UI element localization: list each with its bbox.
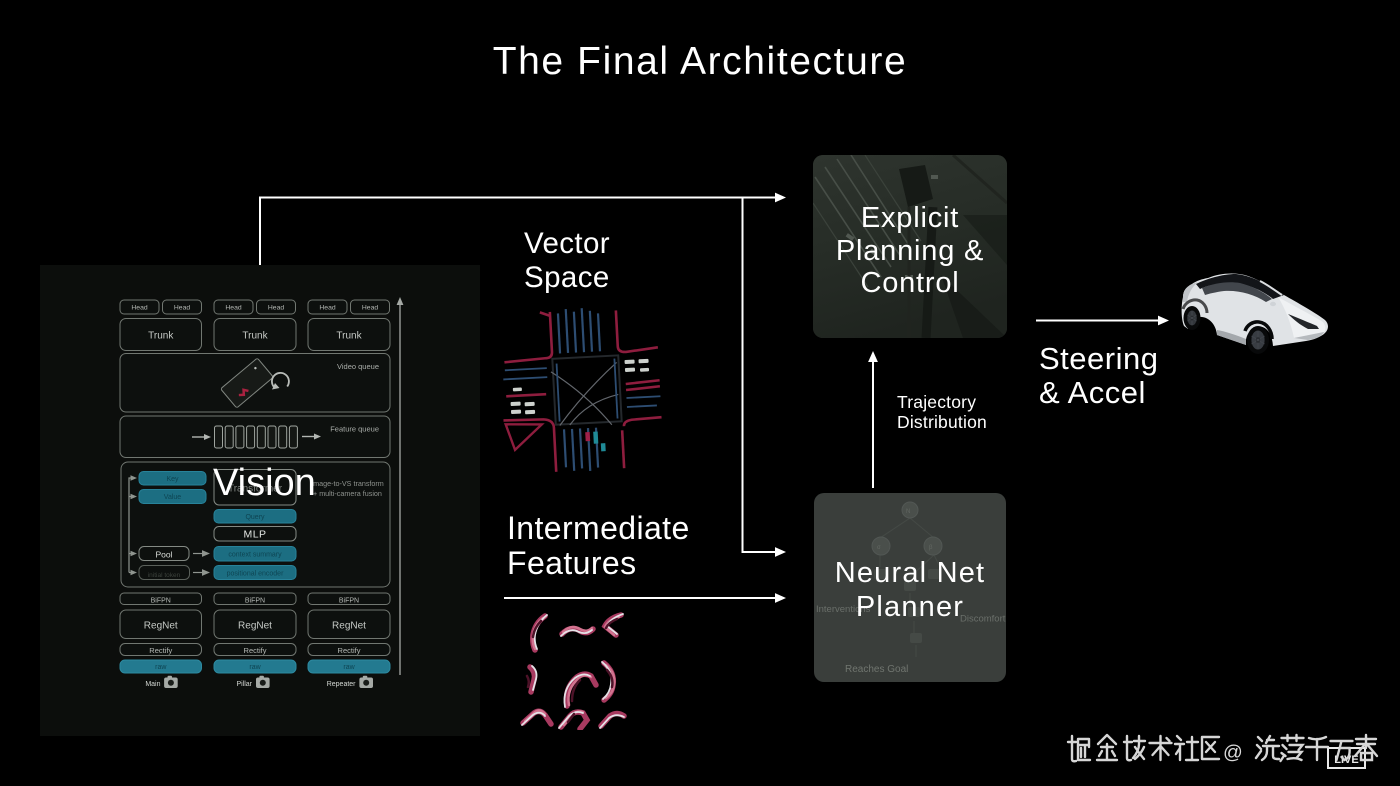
svg-text:Reaches Goal: Reaches Goal: [845, 664, 908, 675]
svg-text:β: β: [929, 545, 933, 551]
svg-text:@: @: [1223, 742, 1243, 764]
svg-text:N: N: [906, 509, 910, 515]
svg-text:σ: σ: [877, 545, 881, 551]
